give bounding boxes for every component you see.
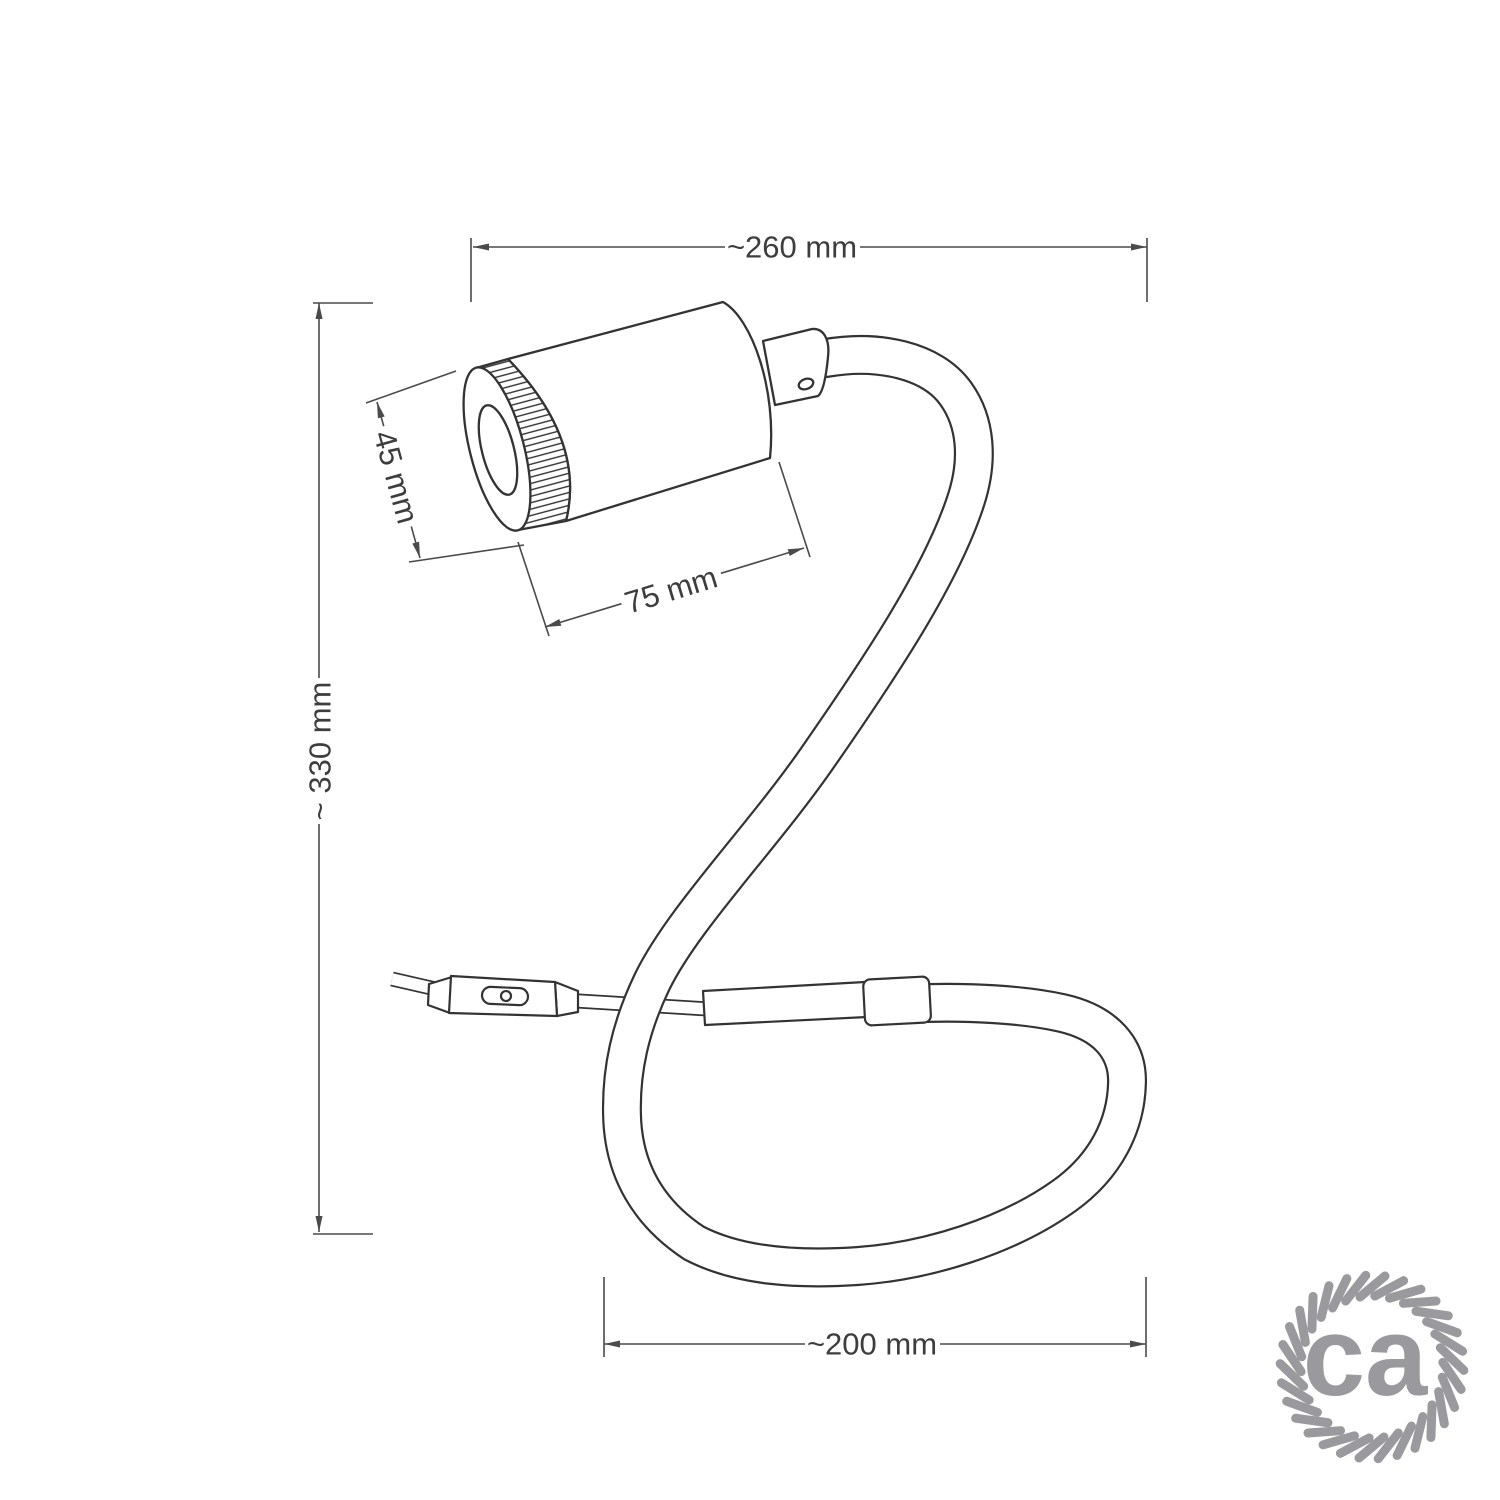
dimension-label-spot-length: 75 mm xyxy=(621,559,722,620)
dimension-label-base-width: ~200 mm xyxy=(807,1327,937,1362)
extension-line xyxy=(409,545,524,562)
strain-relief-sleeve xyxy=(703,982,867,1025)
extension-line xyxy=(518,542,549,636)
arrowhead xyxy=(1131,244,1147,251)
arrowhead xyxy=(545,619,561,627)
inline-switch xyxy=(428,976,578,1016)
lamp-dimension-diagram: ~260 mm ~ 330 mm 45 mm 75 mm xyxy=(0,0,1500,1500)
dimension-label-width-top: ~260 mm xyxy=(727,230,857,265)
flexible-stem xyxy=(622,355,1127,1267)
arrowhead xyxy=(412,542,420,558)
dimension-width-top: ~260 mm xyxy=(471,230,1147,303)
switch-button xyxy=(501,991,511,1001)
arrowhead xyxy=(316,1216,323,1232)
arrowhead xyxy=(788,548,804,556)
brand-logo: ca xyxy=(1280,1275,1464,1458)
logo-text: ca xyxy=(1303,1294,1428,1419)
dimension-label-spot-diameter: 45 mm xyxy=(366,427,425,528)
arrowhead xyxy=(473,244,489,251)
switch-right-cap xyxy=(555,982,578,1016)
cable-sleeve xyxy=(703,976,931,1025)
arrowhead xyxy=(604,1341,620,1348)
dimension-height-left: ~ 330 mm xyxy=(303,303,374,1234)
arrowhead xyxy=(377,402,385,418)
head-connector xyxy=(763,329,828,405)
lamp-head xyxy=(450,302,828,537)
dimension-label-height-left: ~ 330 mm xyxy=(303,682,338,821)
extension-line xyxy=(779,462,810,557)
dimension-base-width: ~200 mm xyxy=(604,1277,1146,1362)
technical-drawing-canvas: ~260 mm ~ 330 mm 45 mm 75 mm xyxy=(0,0,1500,1500)
arrowhead xyxy=(1130,1341,1146,1348)
ferrule xyxy=(863,976,931,1025)
extension-line xyxy=(366,371,456,403)
arrowhead xyxy=(316,303,323,319)
